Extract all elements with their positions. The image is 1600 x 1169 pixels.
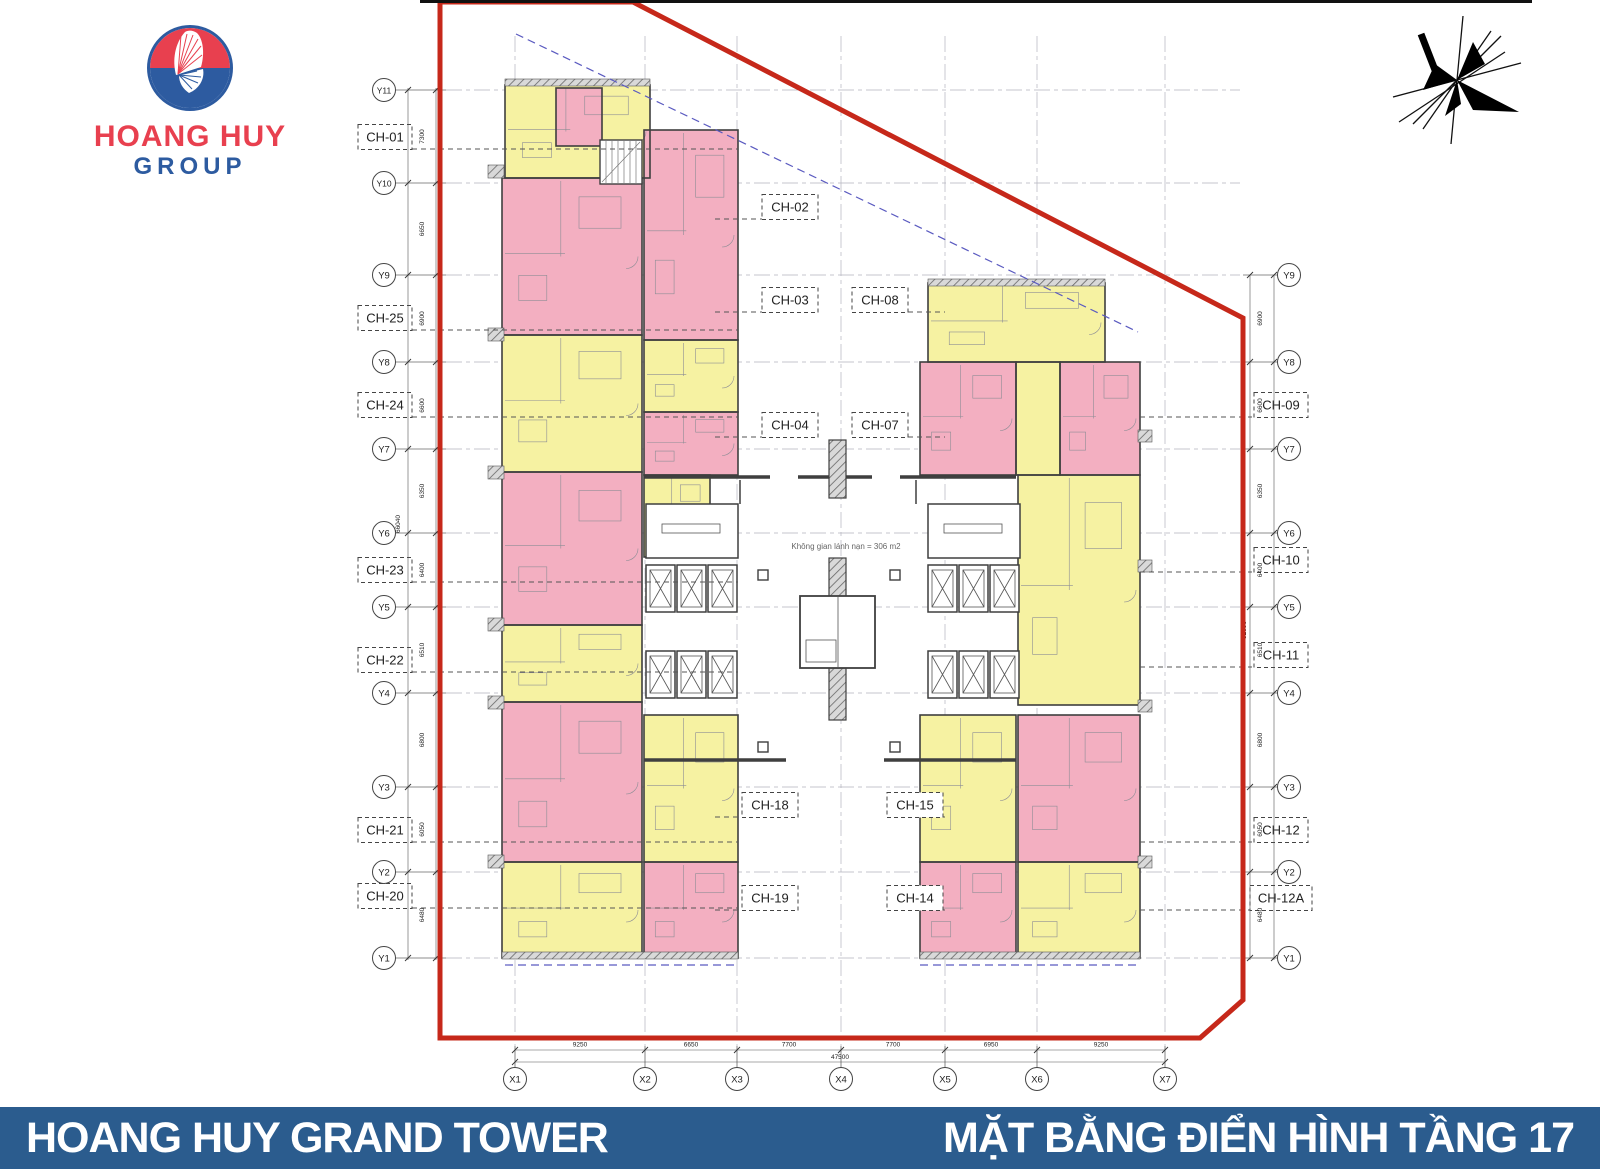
hatch-strip [488,618,504,631]
stair-core [600,140,642,184]
column [890,742,900,752]
hatch-strip [488,696,504,709]
axis-bubble-label: Y8 [1283,358,1295,369]
hatch-strip [505,79,650,86]
unit-label: CH-25 [366,311,404,326]
compass-icon [1385,12,1555,182]
dim-value: 6510 [1257,642,1264,657]
unit-label: CH-12A [1258,891,1305,906]
axis-bubble-label: Y8 [378,358,390,369]
unit-label: CH-03 [771,293,809,308]
dim-value: 6600 [1257,398,1264,413]
column [890,570,900,580]
axis-bubble-label: X2 [639,1075,651,1086]
axis-bubble-label: Y4 [1283,689,1295,700]
hatch-strip [1138,560,1152,572]
hatch-strip [1138,430,1152,442]
axis-bubble-label: Y1 [378,954,390,965]
axis-bubble-label: Y5 [1283,603,1295,614]
unit-label: CH-18 [751,798,789,813]
dim-value: 6800 [1257,732,1264,747]
hatch-strip [1138,700,1152,712]
axis-bubble-label: X1 [509,1075,521,1086]
axis-bubble-label: Y2 [1283,868,1295,879]
axis-bubble-label: Y4 [378,689,390,700]
project-title: HOANG HUY GRAND TOWER [26,1114,608,1163]
core-room [800,596,875,668]
hatch-strip [928,279,1105,286]
unit-label: CH-08 [861,293,899,308]
page: Không gian lánh nạn = 306 m2CH-01CH-25CH… [0,0,1600,1169]
machine-room [646,504,738,558]
dim-value: 7700 [886,1042,901,1049]
axis-bubble-label: Y7 [1283,445,1295,456]
dim-value: 9250 [573,1042,588,1049]
shaft [829,440,846,498]
dim-value: 6650 [684,1042,699,1049]
unit-labels: CH-01CH-25CH-24CH-23CH-22CH-21CH-20CH-09… [358,125,1312,911]
hatch-strip [488,855,504,868]
dim-value: 6350 [1257,483,1264,498]
column [758,742,768,752]
unit-label: CH-10 [1262,553,1300,568]
dim-total: 47500 [831,1054,849,1061]
dim-value: 7300 [419,129,426,144]
logo-name: HOANG HUY [70,120,310,153]
title-bar: HOANG HUY GRAND TOWER MẶT BẰNG ĐIỂN HÌNH… [0,1107,1600,1169]
dim-value: 9250 [1094,1042,1109,1049]
refuge-space-label: Không gian lánh nạn = 306 m2 [791,542,901,551]
axis-bubble-label: Y2 [378,868,390,879]
unit-label: CH-07 [861,418,899,433]
unit-label: CH-04 [771,418,809,433]
unit-label: CH-02 [771,200,809,215]
unit-label: CH-21 [366,823,404,838]
shaft [829,668,846,720]
unit-label: CH-09 [1262,398,1300,413]
dim-value: 7700 [782,1042,797,1049]
axis-bubble-label: Y6 [378,529,390,540]
axis-bubble-label: Y5 [378,603,390,614]
compass-points [1423,42,1519,116]
unit-label: CH-20 [366,889,404,904]
dim-value: 6650 [419,221,426,236]
dim-value: 6480 [419,907,426,922]
unit-label: CH-22 [366,653,404,668]
hatch-strip [920,952,1140,959]
hatch-strip [488,165,504,178]
dim-value: 6400 [419,562,426,577]
axis-bubble-label: Y11 [377,86,392,96]
dim-value: 6050 [1257,822,1264,837]
hatch-strip [1138,856,1152,868]
dim-value: 6900 [419,311,426,326]
dim-value: 6050 [419,822,426,837]
unit-label: CH-14 [896,891,934,906]
dim-value: 6950 [984,1042,999,1049]
unit [1016,362,1060,475]
column [758,570,768,580]
unit-label: CH-15 [896,798,934,813]
compass-needle-bar [1421,34,1435,70]
axis-bubble-label: Y6 [1283,529,1295,540]
axis-bubble-label: Y1 [1283,954,1295,965]
dim-value: 6510 [419,642,426,657]
axis-bubble-label: Y3 [378,783,390,794]
dim-value: 6400 [1257,562,1264,577]
unit-label: CH-11 [1263,648,1300,663]
unit-label: CH-12 [1262,823,1300,838]
unit-label: CH-01 [366,130,404,145]
axis-bubble-label: Y9 [1283,271,1295,282]
logo: HOANG HUY GROUP [70,22,310,182]
logo-group-text: GROUP [70,153,310,182]
dim-total: 66040 [395,515,402,533]
axis-bubble-label: X4 [835,1075,847,1086]
axis-bubble-label: Y9 [378,271,390,282]
hatch-strip [488,466,504,479]
axis-bubble-label: X3 [731,1075,743,1086]
dim-value: 6800 [419,732,426,747]
axis-bubble-label: X6 [1031,1075,1043,1086]
unit-label: CH-19 [751,891,789,906]
unit-label: CH-24 [366,398,404,413]
unit-label: CH-23 [366,563,404,578]
logo-icon [144,22,236,114]
axis-bubble-label: X7 [1159,1075,1171,1086]
drawing-title: MẶT BẰNG ĐIỂN HÌNH TẦNG 17 [943,1114,1574,1163]
axis-bubble-label: X5 [939,1075,951,1086]
dim-value: 6480 [1257,907,1264,922]
axis-bubble-label: Y10 [376,179,391,189]
machine-room [928,504,1020,558]
dim-value: 6350 [419,483,426,498]
axis-bubble-label: Y3 [1283,783,1295,794]
dim-value: 6900 [1257,311,1264,326]
axis-bubble-label: Y7 [378,445,390,456]
dim-value: 6600 [419,398,426,413]
hatch-strip [502,952,738,959]
unit [556,88,602,146]
